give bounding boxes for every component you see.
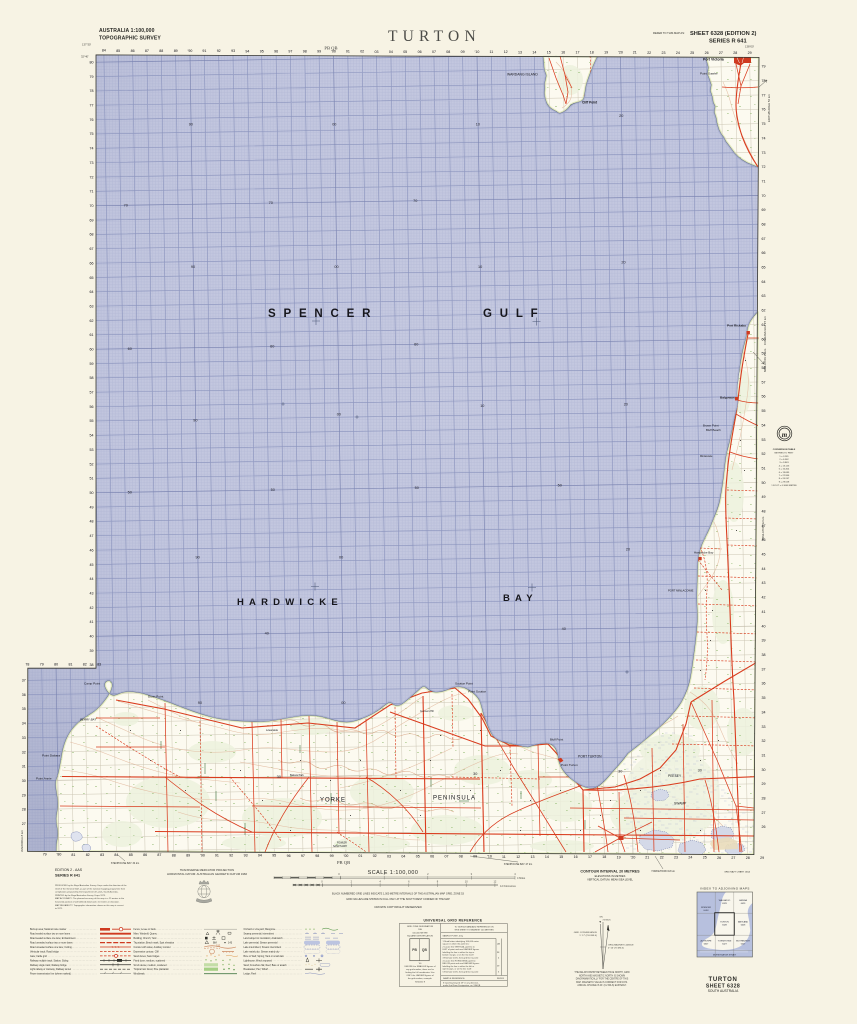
svg-text:33: 33 xyxy=(22,736,26,740)
svg-text:37: 37 xyxy=(22,679,26,683)
svg-text:ONLY the LARGER figures of: ONLY the LARGER figures of xyxy=(406,974,434,977)
svg-text:17: 17 xyxy=(576,51,580,55)
svg-text:right margin, or on the line i: right margin, or on the line itself: xyxy=(443,968,473,971)
svg-text:99: 99 xyxy=(330,854,334,858)
svg-text:Mine; Windmill; Quarry: Mine; Windmill; Quarry xyxy=(134,933,158,936)
svg-text:54: 54 xyxy=(90,434,94,438)
svg-text:81: 81 xyxy=(69,662,73,666)
svg-text:Sand; Foreshore flat; Reef; Ba: Sand; Foreshore flat; Reef; Bare or awas… xyxy=(244,964,288,967)
svg-text:08: 08 xyxy=(459,855,463,859)
svg-text:1 FOOT = 0.3048 METRE: 1 FOOT = 0.3048 METRE xyxy=(771,485,797,487)
svg-text:50: 50 xyxy=(271,488,275,492)
svg-text:Bluff Point: Bluff Point xyxy=(550,738,563,742)
svg-text:44: 44 xyxy=(762,567,766,571)
svg-text:Port Victoria: Port Victoria xyxy=(703,58,724,62)
svg-text:LEFT of point and read LARGER: LEFT of point and read LARGER figures xyxy=(443,948,480,951)
svg-text:PB QB: PB QB xyxy=(324,45,337,50)
svg-text:Road sealed surface one lane;: Road sealed surface one lane; Embankment xyxy=(30,937,76,940)
svg-text:3 Estimate tenths from grid l: 3 Estimate tenths from grid line to poin… xyxy=(443,957,479,960)
svg-text:20: 20 xyxy=(621,260,625,264)
svg-text:50: 50 xyxy=(128,490,132,494)
svg-text:97: 97 xyxy=(301,854,305,858)
svg-text:984593: 984593 xyxy=(497,978,505,980)
svg-text:62: 62 xyxy=(90,319,94,323)
svg-text:04: 04 xyxy=(401,854,405,858)
svg-text:Point Dabara: Point Dabara xyxy=(42,754,60,758)
svg-text:Windbreak: Windbreak xyxy=(134,973,146,976)
svg-text:06: 06 xyxy=(418,50,422,54)
svg-text:80: 80 xyxy=(90,61,94,65)
svg-text:′20: ′20 xyxy=(631,855,636,859)
svg-text:40: 40 xyxy=(762,624,766,628)
svg-text:prefix Grid Zone Designation,: prefix Grid Zone Designation, as: 53HQB xyxy=(443,984,481,987)
svg-text:PB: PB xyxy=(412,948,417,952)
svg-text:74 MILS: 74 MILS xyxy=(602,920,611,922)
svg-text:65: 65 xyxy=(90,276,94,280)
svg-text:25: 25 xyxy=(690,51,694,55)
svg-text:Point Annie: Point Annie xyxy=(36,777,52,781)
svg-text:55: 55 xyxy=(762,409,766,413)
svg-text:GRID VALUES ARE SHOWN IN FULL: GRID VALUES ARE SHOWN IN FULL ONLY AT TH… xyxy=(346,898,450,901)
svg-text:CROWN COPYRIGHT RESERVED: CROWN COPYRIGHT RESERVED xyxy=(374,905,422,909)
svg-text:square in which the point lies: square in which the point lies: xyxy=(443,943,470,946)
svg-text:74: 74 xyxy=(90,147,94,151)
svg-text:10: 10 xyxy=(478,265,482,269)
svg-text:52: 52 xyxy=(90,462,94,466)
svg-text:32: 32 xyxy=(762,739,766,743)
svg-text:Brown Point: Brown Point xyxy=(703,424,719,428)
svg-text:to 1971.: to 1971. xyxy=(55,907,63,910)
svg-text:39: 39 xyxy=(90,649,94,653)
svg-text:90: 90 xyxy=(189,122,193,126)
svg-text:1° 17′ (23.8 MILS): 1° 17′ (23.8 MILS) xyxy=(579,935,597,937)
svg-text:22: 22 xyxy=(660,856,664,860)
svg-text:80: 80 xyxy=(54,662,58,666)
svg-text:THIS SHEET TO NEAREST 100 METR: THIS SHEET TO NEAREST 100 METRES xyxy=(454,928,494,931)
svg-text:′80: ′80 xyxy=(57,853,62,857)
svg-text:48: 48 xyxy=(90,520,94,524)
svg-text:79: 79 xyxy=(43,853,47,857)
svg-text:STENHOUSE BAY 47 km: STENHOUSE BAY 47 km xyxy=(504,863,533,866)
svg-text:Gunners Hill: Gunners Hill xyxy=(420,710,434,713)
svg-text:6 = 19.685: 6 = 19.685 xyxy=(779,472,790,474)
svg-text:70: 70 xyxy=(90,204,94,208)
svg-text:Lake intermittent; Stream inte: Lake intermittent; Stream intermittent xyxy=(244,946,282,949)
svg-text:74: 74 xyxy=(762,136,766,140)
svg-text:32°40′: 32°40′ xyxy=(81,55,89,59)
svg-text:73: 73 xyxy=(90,161,94,165)
svg-text:16: 16 xyxy=(574,855,578,859)
svg-text:GULF: GULF xyxy=(703,910,709,912)
svg-text:90: 90 xyxy=(193,418,197,422)
svg-text:Chief of the General Staff, as: Chief of the General Staff, as part of t… xyxy=(55,887,125,890)
svg-text:01: 01 xyxy=(358,854,362,858)
svg-text:Point Gawler: Point Gawler xyxy=(700,72,718,76)
svg-text:26: 26 xyxy=(705,51,709,55)
svg-text:Bluff Beach: Bluff Beach xyxy=(706,428,721,432)
svg-text:TURTON: TURTON xyxy=(720,922,729,924)
svg-text:WAROOKA 8 km: WAROOKA 8 km xyxy=(20,830,24,852)
svg-text:10: 10 xyxy=(480,404,484,408)
svg-text:51: 51 xyxy=(762,466,766,470)
svg-text:68: 68 xyxy=(90,233,94,237)
svg-text:71: 71 xyxy=(90,190,94,194)
svg-text:42: 42 xyxy=(762,596,766,600)
svg-text:PRINTED by the Royal Australia: PRINTED by the Royal Australian Survey C… xyxy=(55,894,106,897)
svg-text:MAP. MAGNETIC VALUE IS CORRECT: MAP. MAGNETIC VALUE IS CORRECT FOR 1974. xyxy=(576,981,628,984)
svg-text:50: 50 xyxy=(558,484,562,488)
svg-text:27: 27 xyxy=(719,51,723,55)
svg-text:00: 00 xyxy=(337,412,341,416)
svg-text:Cliff Point: Cliff Point xyxy=(582,101,598,105)
svg-text:57: 57 xyxy=(762,380,766,384)
svg-text:Breakwater; Pier; Wharf: Breakwater; Pier; Wharf xyxy=(244,968,269,971)
svg-text:63: 63 xyxy=(762,294,766,298)
svg-text:79: 79 xyxy=(762,65,766,69)
svg-text:11: 11 xyxy=(490,50,494,54)
svg-text:96: 96 xyxy=(274,49,278,53)
svg-text:STENHOUSE BAY 34 km: STENHOUSE BAY 34 km xyxy=(111,862,140,865)
svg-text:87: 87 xyxy=(145,49,149,53)
svg-text:100,000 METRE: 100,000 METRE xyxy=(412,933,428,935)
svg-text:15: 15 xyxy=(559,855,563,859)
svg-text:29: 29 xyxy=(762,782,766,786)
svg-text:14: 14 xyxy=(545,855,549,859)
svg-text:INDEX TO ADJOINING MAPS: INDEX TO ADJOINING MAPS xyxy=(700,887,750,891)
svg-text:Port Rickaby: Port Rickaby xyxy=(727,324,746,328)
svg-text:99: 99 xyxy=(317,50,321,54)
svg-text:90: 90 xyxy=(191,265,195,269)
svg-text:27: 27 xyxy=(762,811,766,815)
svg-text:4 Locate first HORIZONTAL gri: 4 Locate first HORIZONTAL grid line xyxy=(443,959,477,962)
svg-text:19: 19 xyxy=(617,855,621,859)
svg-text:8 = 26.247: 8 = 26.247 xyxy=(779,478,790,480)
svg-text:AUSTRALIA 1:100,000: AUSTRALIA 1:100,000 xyxy=(99,28,155,34)
svg-text:78: 78 xyxy=(90,89,94,93)
svg-text:31: 31 xyxy=(762,754,766,758)
svg-text:TO GIVE A STANDARD REFERENCE O: TO GIVE A STANDARD REFERENCE ON xyxy=(454,925,494,928)
svg-text:59: 59 xyxy=(90,362,94,366)
svg-text:66: 66 xyxy=(762,251,766,255)
svg-text:58: 58 xyxy=(90,376,94,380)
svg-text:28: 28 xyxy=(746,856,750,860)
svg-text:55: 55 xyxy=(90,419,94,423)
svg-text:Contour with value; Auxiliary: Contour with value; Auxiliary contour xyxy=(134,946,171,949)
svg-text:7 = 22.966: 7 = 22.966 xyxy=(779,475,790,477)
svg-text:93: 93 xyxy=(244,854,248,858)
svg-text:Scrub dense; medium, scattered: Scrub dense; medium, scattered xyxy=(134,964,168,967)
svg-text:SWAMP: SWAMP xyxy=(674,802,687,806)
svg-text:82: 82 xyxy=(83,662,87,666)
svg-text:16: 16 xyxy=(561,51,565,55)
svg-text:53H: 53H xyxy=(418,929,422,931)
svg-text:Ledge; Reef: Ledge; Reef xyxy=(244,974,257,976)
svg-text:Orchard or vineyard; Mangrove: Orchard or vineyard; Mangrove xyxy=(244,928,277,931)
svg-text:27: 27 xyxy=(731,856,735,860)
svg-text:Lighthouse; Wreck exposed: Lighthouse; Wreck exposed xyxy=(244,959,273,962)
svg-text:FOWLER: FOWLER xyxy=(337,843,347,845)
svg-text:′84′000m E: ′84′000m E xyxy=(415,981,426,983)
svg-text:Depression contour; Cliff: Depression contour; Cliff xyxy=(134,951,159,954)
svg-text:ANNUAL CHANGE IS 01′ (0.2 MILS: ANNUAL CHANGE IS 01′ (0.2 MILS) EASTERLY… xyxy=(577,984,627,987)
svg-text:Swamp perennial; intermittent: Swamp perennial; intermittent xyxy=(244,933,275,936)
svg-text:137°30′: 137°30′ xyxy=(82,43,92,47)
svg-text:67: 67 xyxy=(90,247,94,251)
svg-text:′10: ′10 xyxy=(475,50,480,54)
svg-text:MAITLAND: MAITLAND xyxy=(738,921,749,924)
svg-text:88: 88 xyxy=(159,49,163,53)
svg-text:GRID CONVERGENCE: GRID CONVERGENCE xyxy=(574,932,598,934)
svg-text:05: 05 xyxy=(416,854,420,858)
svg-text:56: 56 xyxy=(762,395,766,399)
svg-text:′90: ′90 xyxy=(200,853,205,857)
svg-text:KADINA: KADINA xyxy=(739,899,747,902)
svg-text:Road sealed surface two or mor: Road sealed surface two or more lanes xyxy=(30,933,71,936)
svg-text:29: 29 xyxy=(22,793,26,797)
svg-text:Road unsealed surface two or m: Road unsealed surface two or more lanes xyxy=(30,942,73,945)
svg-text:47: 47 xyxy=(90,534,94,538)
svg-text:′20: ′20 xyxy=(618,51,623,55)
svg-text:23: 23 xyxy=(674,856,678,860)
svg-text:79: 79 xyxy=(40,662,44,666)
svg-text:IGNORE the SMALLER figures of: IGNORE the SMALLER figures of xyxy=(404,965,435,968)
svg-text:PB QB: PB QB xyxy=(337,860,350,865)
svg-text:53: 53 xyxy=(762,438,766,442)
svg-text:Fixed dune; medium, scattered: Fixed dune; medium, scattered xyxy=(134,959,166,962)
svg-text:15: 15 xyxy=(547,50,551,54)
svg-text:64: 64 xyxy=(762,280,766,284)
svg-text:2 = 6.562: 2 = 6.562 xyxy=(779,459,789,461)
svg-text:METRES TO FEET: METRES TO FEET xyxy=(775,452,795,454)
svg-text:93: 93 xyxy=(231,49,235,53)
svg-text:69: 69 xyxy=(90,218,94,222)
svg-text:Lake perennial; Stream perenni: Lake perennial; Stream perennial xyxy=(244,942,278,945)
svg-text:95: 95 xyxy=(272,854,276,858)
svg-text:26: 26 xyxy=(717,856,721,860)
svg-text:31: 31 xyxy=(22,765,26,769)
svg-text:45: 45 xyxy=(90,563,94,567)
svg-text:37: 37 xyxy=(762,667,766,671)
svg-text:19: 19 xyxy=(604,51,608,55)
svg-text:EDITION 2 - AAS: EDITION 2 - AAS xyxy=(55,868,83,872)
svg-text:Dunn Point: Dunn Point xyxy=(148,695,163,699)
svg-text:70: 70 xyxy=(269,201,273,205)
svg-text:Power transmission line (where: Power transmission line (where marked) xyxy=(30,973,71,976)
svg-text:PORT TURTON: PORT TURTON xyxy=(578,755,602,759)
svg-text:35: 35 xyxy=(762,696,766,700)
svg-text:78: 78 xyxy=(25,662,29,666)
svg-text:66: 66 xyxy=(90,261,94,265)
svg-text:30: 30 xyxy=(618,770,622,774)
svg-text:Bore or Well; Spring; Tank or: Bore or Well; Spring; Tank or small dam xyxy=(244,955,284,958)
svg-text:INVESTIGATOR STRAIT: INVESTIGATOR STRAIT xyxy=(713,953,737,956)
svg-text:85: 85 xyxy=(116,49,120,53)
svg-text:36: 36 xyxy=(22,693,26,697)
svg-text:79: 79 xyxy=(90,75,94,79)
svg-text:20: 20 xyxy=(624,402,628,406)
svg-text:05: 05 xyxy=(403,50,407,54)
svg-text:BERRY BAY: BERRY BAY xyxy=(80,718,97,722)
svg-text:28: 28 xyxy=(762,797,766,801)
svg-text:WARDANG ISLAND: WARDANG ISLAND xyxy=(507,73,538,77)
svg-text:00: 00 xyxy=(332,122,336,126)
svg-text:30: 30 xyxy=(22,779,26,783)
svg-text:UNIVERSAL GRID REFERENCE: UNIVERSAL GRID REFERENCE xyxy=(424,919,483,923)
svg-text:30: 30 xyxy=(762,768,766,772)
svg-text:1 = 3.281: 1 = 3.281 xyxy=(779,456,789,458)
svg-text:46: 46 xyxy=(90,548,94,552)
svg-text:97: 97 xyxy=(288,49,292,53)
svg-text:75: 75 xyxy=(762,122,766,126)
svg-text:83: 83 xyxy=(97,662,101,666)
svg-text:21: 21 xyxy=(633,51,637,55)
svg-text:51: 51 xyxy=(90,477,94,481)
svg-text:PRODUCED by the Royal Australi: PRODUCED by the Royal Australian Survey … xyxy=(55,884,127,887)
svg-text:89: 89 xyxy=(174,49,178,53)
svg-text:Point Turton: Point Turton xyxy=(561,763,578,767)
svg-text:70: 70 xyxy=(762,194,766,198)
svg-text:41: 41 xyxy=(762,610,766,614)
svg-text:HARDWICKE: HARDWICKE xyxy=(237,597,343,608)
svg-text:00: 00 xyxy=(341,701,345,705)
svg-text:NORTH AND MAGNETIC NORTH IS SH: NORTH AND MAGNETIC NORTH IS SHOWN xyxy=(579,974,626,977)
svg-text:81: 81 xyxy=(71,853,75,857)
svg-text:Building; Church; Yard: Building; Church; Yard xyxy=(134,937,157,940)
svg-text:SAMPLE POINT: Jetty: SAMPLE POINT: Jetty xyxy=(443,935,464,938)
svg-text:Hardwicke Bay: Hardwicke Bay xyxy=(694,551,714,555)
svg-text:33: 33 xyxy=(762,725,766,729)
svg-text:the grid number; example:: the grid number; example: xyxy=(408,977,433,980)
svg-text:95: 95 xyxy=(260,49,264,53)
svg-text:72: 72 xyxy=(90,175,94,179)
svg-text:03: 03 xyxy=(387,854,391,858)
svg-text:TURTON: TURTON xyxy=(388,28,481,45)
svg-text:TURTON: TURTON xyxy=(708,977,737,983)
svg-text:69: 69 xyxy=(762,208,766,212)
svg-text:THE RELATIONSHIP BETWEEN TRUE: THE RELATIONSHIP BETWEEN TRUE NORTH, GRI… xyxy=(574,971,630,974)
svg-text:40: 40 xyxy=(265,632,269,636)
svg-text:Souttar Point: Souttar Point xyxy=(455,682,473,686)
svg-text:13: 13 xyxy=(518,50,522,54)
svg-text:′00: ′00 xyxy=(344,854,349,858)
svg-text:68: 68 xyxy=(762,223,766,227)
svg-text:61: 61 xyxy=(90,333,94,337)
svg-text:Tropical rain forest; Pine pla: Tropical rain forest; Pine plantation xyxy=(134,968,170,971)
svg-text:labelling the line in either t: labelling the line in either the left or xyxy=(443,965,475,968)
svg-text:41: 41 xyxy=(90,620,94,624)
svg-text:BLACK NUMBERED GRID LINES INDI: BLACK NUMBERED GRID LINES INDICATE 1,000… xyxy=(332,893,464,896)
svg-text:54: 54 xyxy=(762,423,766,427)
svg-text:30: 30 xyxy=(473,772,477,776)
svg-text:89: 89 xyxy=(186,853,190,857)
svg-text:29: 29 xyxy=(760,856,764,860)
svg-text:12: 12 xyxy=(516,855,520,859)
svg-text:84: 84 xyxy=(114,853,118,857)
svg-text:07: 07 xyxy=(445,855,449,859)
svg-text:22: 22 xyxy=(647,51,651,55)
svg-text:50: 50 xyxy=(90,491,94,495)
svg-text:53: 53 xyxy=(90,448,94,452)
svg-text:CONVERSION TABLE: CONVERSION TABLE xyxy=(773,448,796,451)
svg-text:14: 14 xyxy=(532,50,536,54)
svg-text:SPENCER: SPENCER xyxy=(701,907,711,909)
svg-text:GULF: GULF xyxy=(483,308,546,320)
svg-text:Lake mainly dry; Stream mainly: Lake mainly dry; Stream mainly dry xyxy=(244,951,281,954)
svg-text:87: 87 xyxy=(157,853,161,857)
svg-text:VERTICAL DATUM: MEAN SEA LEVEL: VERTICAL DATUM: MEAN SEA LEVEL xyxy=(587,878,633,882)
svg-text:24: 24 xyxy=(688,856,692,860)
svg-text:4 = 13.123: 4 = 13.123 xyxy=(779,465,790,467)
svg-text:compilations prepared by the D: compilations prepared by the Department … xyxy=(55,891,119,894)
svg-text:65: 65 xyxy=(762,266,766,270)
svg-text:94: 94 xyxy=(258,854,262,858)
svg-text:WALLAROO: WALLAROO xyxy=(719,899,731,902)
svg-text:12 Kilometres: 12 Kilometres xyxy=(500,884,517,888)
svg-text:DIAGRAMMATICALLY FOR THE CENTR: DIAGRAMMATICALLY FOR THE CENTRE OF THIS xyxy=(576,978,629,981)
svg-text:GRID-MAGNETIC ANGLE: GRID-MAGNETIC ANGLE xyxy=(608,944,634,947)
svg-text:Point Souttar: Point Souttar xyxy=(468,690,486,694)
svg-text:32: 32 xyxy=(22,750,26,754)
svg-text:20: 20 xyxy=(626,547,630,551)
svg-text:70: 70 xyxy=(124,203,128,207)
svg-text:TOPOGRAPHIC SURVEY: TOPOGRAPHIC SURVEY xyxy=(99,36,161,42)
svg-text:23: 23 xyxy=(662,51,666,55)
svg-text:9 = 29.528: 9 = 29.528 xyxy=(779,481,790,483)
svg-text:Railway single track; Railway: Railway single track; Railway bridge xyxy=(30,964,67,967)
svg-text:YORKETOWN 18 km: YORKETOWN 18 km xyxy=(651,870,675,873)
svg-text:38: 38 xyxy=(762,653,766,657)
svg-text:60: 60 xyxy=(270,345,274,349)
svg-text:bottom margin, or on the line: bottom margin, or on the line itself: xyxy=(443,954,475,957)
svg-text:48: 48 xyxy=(762,510,766,514)
svg-text:49: 49 xyxy=(90,505,94,509)
svg-text:any grid number; those are for: any grid number; those are for xyxy=(406,968,434,971)
svg-text:34: 34 xyxy=(22,722,26,726)
svg-text:Fence; Levee or bank: Fence; Levee or bank xyxy=(134,928,157,931)
svg-text:Camp Point: Camp Point xyxy=(84,682,100,686)
svg-text:SQUARE IDENTIFICATION: SQUARE IDENTIFICATION xyxy=(407,935,433,938)
svg-text:43: 43 xyxy=(90,591,94,595)
svg-text:PENINSULA: PENINSULA xyxy=(433,796,476,802)
svg-text:SCALE 1:100,000: SCALE 1:100,000 xyxy=(368,870,419,876)
svg-text:horizontal position of well de: horizontal position of well defined deta… xyxy=(55,901,120,904)
svg-text:MINLATON 12 km: MINLATON 12 km xyxy=(761,516,765,540)
svg-text:02: 02 xyxy=(373,854,377,858)
svg-text:MAP ACCURACY: The planned accu: MAP ACCURACY: The planned accuracy of th… xyxy=(55,897,125,900)
svg-text:82: 82 xyxy=(86,853,90,857)
svg-text:09: 09 xyxy=(461,50,465,54)
svg-text:94: 94 xyxy=(245,49,249,53)
svg-text:77: 77 xyxy=(90,104,94,108)
svg-text:18: 18 xyxy=(602,855,606,859)
svg-text:ALTHORPE: ALTHORPE xyxy=(701,940,713,943)
svg-text:30: 30 xyxy=(277,775,281,779)
svg-text:27: 27 xyxy=(22,822,26,826)
svg-text:71: 71 xyxy=(762,180,766,184)
svg-text:90: 90 xyxy=(196,555,200,559)
svg-text:18: 18 xyxy=(590,51,594,55)
svg-text:SANCTUARY: SANCTUARY xyxy=(333,845,348,848)
svg-text:finding the full coordinates.: finding the full coordinates. Use xyxy=(406,971,436,974)
svg-text:60: 60 xyxy=(414,342,418,346)
svg-text:84: 84 xyxy=(102,49,106,53)
svg-text:SHEET 6328 (EDITION 2): SHEET 6328 (EDITION 2) xyxy=(690,31,756,37)
svg-text:40: 40 xyxy=(562,627,566,631)
svg-text:17: 17 xyxy=(588,855,592,859)
svg-text:91: 91 xyxy=(202,49,206,53)
svg-text:SOUTH AUSTRALIA: SOUTH AUSTRALIA xyxy=(708,989,739,993)
svg-text:PORT MINLACOWIE: PORT MINLACOWIE xyxy=(668,589,694,593)
